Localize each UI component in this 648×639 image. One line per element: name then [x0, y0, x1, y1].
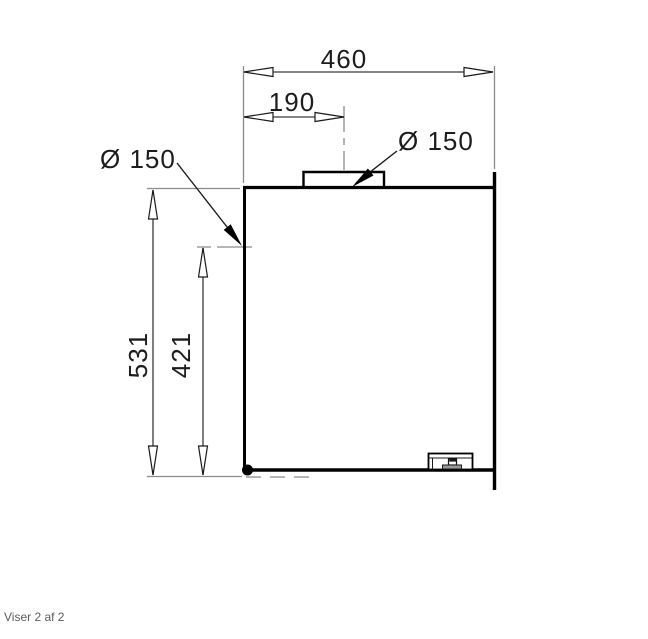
dim-label-421: 421	[166, 332, 196, 378]
dim-label-460: 460	[321, 44, 367, 74]
arrowhead-421-top	[199, 248, 208, 277]
corner-dot	[242, 465, 253, 476]
arrowhead-460-right	[464, 68, 493, 77]
drain-fitting-stem-cap	[449, 459, 456, 462]
dim-label-side-spigot-diameter: Ø 150	[100, 144, 176, 174]
box-outline	[243, 172, 495, 490]
arrowhead-421-bottom	[199, 446, 208, 475]
arrowhead-531-bottom	[149, 446, 158, 475]
technical-drawing: 460 190 Ø 150 Ø 150 531 421	[0, 0, 648, 639]
page-indicator: Viser 2 af 2	[4, 610, 64, 624]
drain-fitting	[429, 454, 473, 470]
dim-label-531: 531	[123, 332, 153, 378]
leader-arrow-side-spigot	[224, 224, 242, 246]
leader-lines	[177, 151, 397, 246]
arrowhead-460-left	[244, 68, 273, 77]
drain-fitting-base	[443, 465, 462, 469]
drawing-canvas: 460 190 Ø 150 Ø 150 531 421 Viser 2 af 2	[0, 0, 648, 639]
dim-label-190: 190	[269, 87, 315, 117]
arrowhead-190-right	[315, 113, 344, 122]
arrowhead-531-top	[149, 190, 158, 219]
dim-label-top-spigot-diameter: Ø 150	[398, 126, 474, 156]
